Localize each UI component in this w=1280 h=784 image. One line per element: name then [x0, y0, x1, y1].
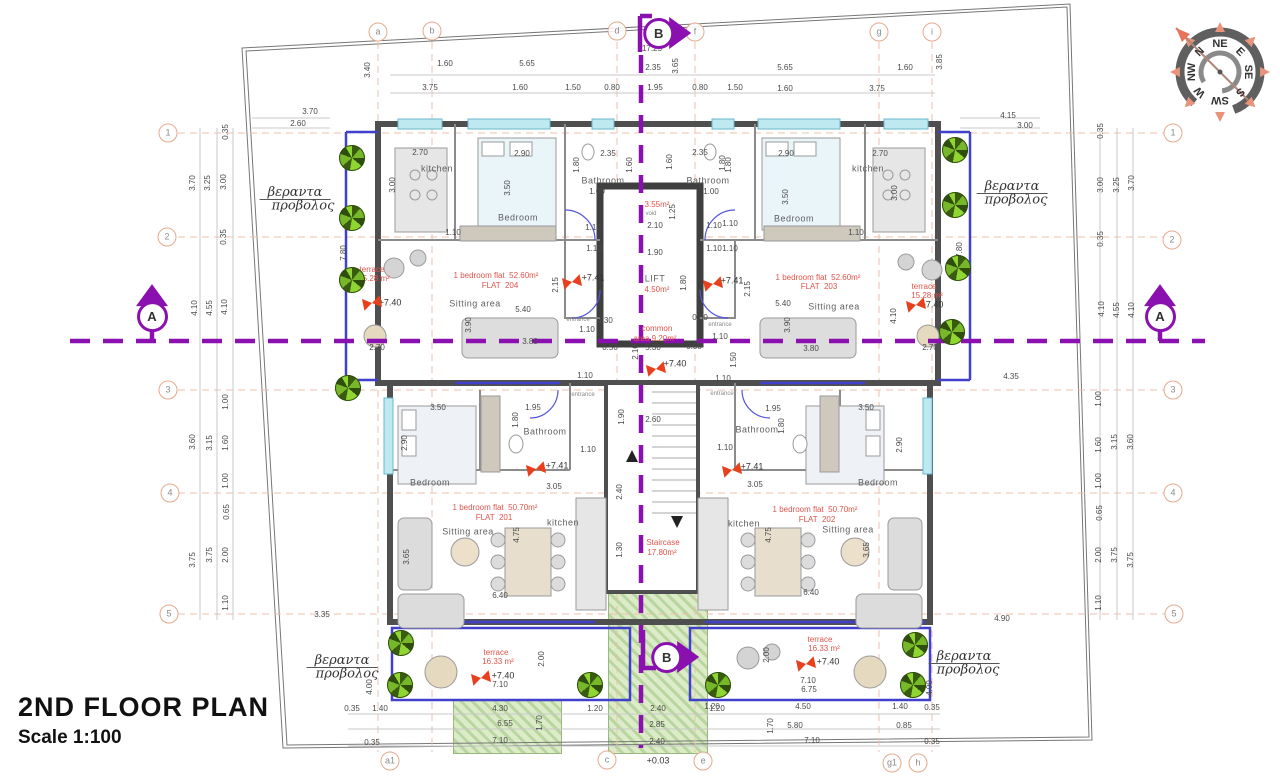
dim-label: 7.80: [340, 245, 348, 261]
dim-label: 1.00: [1095, 473, 1103, 489]
room-label: Bathroom: [686, 177, 729, 186]
dim-label: 4.10: [1098, 301, 1106, 317]
dim-label: 3.90: [465, 317, 473, 333]
compass-dir-sw: SW: [1211, 94, 1229, 106]
dim-label: 5.65: [519, 60, 535, 68]
dim-label: 4.10: [890, 308, 898, 324]
grid-bubble-5: 5: [1165, 605, 1184, 624]
red-label: 1 bedroom flat 52.60m²: [454, 272, 539, 280]
tree-icon: [939, 319, 965, 345]
dim-label: 3.80: [803, 345, 819, 353]
dim-label: 2.40: [649, 738, 665, 746]
level-flash-icon: [526, 461, 546, 476]
dim-label: 1.80: [725, 157, 733, 173]
level-label: +7.41: [741, 463, 764, 472]
section-marker-b: B: [643, 17, 691, 49]
greek-label: προβολος: [316, 668, 379, 681]
dim-label: 2.90: [778, 150, 794, 158]
dim-label: 1.10: [577, 372, 593, 380]
section-label: A: [1145, 301, 1176, 332]
dim-label: 1.10: [586, 245, 602, 253]
grid-bubble-3: 3: [1164, 381, 1183, 400]
red-label: area 9.20m²: [633, 335, 676, 343]
dim-label: 1.60: [222, 435, 230, 451]
red-label: 1 bedroom flat 50.70m²: [773, 506, 858, 514]
dim-label: 1.60: [897, 64, 913, 72]
compass-dir-nw: NW: [1186, 63, 1198, 81]
dim-label: 3.75: [189, 552, 197, 568]
dim-label: 2.00: [538, 651, 546, 667]
dim-label: 3.50: [782, 189, 790, 205]
grid-bubble-g: g: [870, 23, 889, 42]
dim-label: 2.35: [645, 64, 661, 72]
tree-icon: [339, 145, 365, 171]
red-label: 1 bedroom flat 50.70m²: [453, 504, 538, 512]
tree-icon: [339, 205, 365, 231]
tree-icon: [387, 672, 413, 698]
dim-label: 1.20: [587, 705, 603, 713]
dim-label: 1.10: [706, 222, 722, 230]
dim-label: 1.10: [579, 326, 595, 334]
dim-label: 4.75: [513, 527, 521, 543]
dim-label: 2.00: [763, 647, 771, 663]
dim-label: 3.80: [522, 338, 538, 346]
dim-label: 1.00: [222, 473, 230, 489]
dim-label: 2.70: [922, 344, 938, 352]
grid-bubble-a: a: [369, 23, 388, 42]
grid-bubble-a1: a1: [381, 752, 400, 771]
dim-label: 2.70: [872, 150, 888, 158]
title-block: 2ND FLOOR PLAN Scale 1:100: [18, 692, 269, 749]
dim-label: 7.10: [804, 737, 820, 745]
level-flash-icon: [562, 274, 582, 289]
dim-label: 4.35: [1003, 373, 1019, 381]
tiny-label: void: [645, 211, 656, 217]
dim-label: 1.00: [1095, 391, 1103, 407]
dim-label: 2.70: [412, 149, 428, 157]
dim-label: 1.10: [717, 444, 733, 452]
dim-label: 1.10: [848, 229, 864, 237]
dim-label: 3.70: [189, 175, 197, 191]
compass-dir-w: W: [1192, 84, 1208, 100]
dim-label: 1.10: [222, 595, 230, 611]
dim-label: 0.50: [686, 343, 702, 351]
dim-label: 1.60: [437, 60, 453, 68]
compass-dir-n: N: [1193, 45, 1207, 59]
dim-label: 1.10: [722, 220, 738, 228]
dim-label: 3.65: [403, 549, 411, 565]
dim-label: 3.00: [220, 174, 228, 190]
dim-label: 4.15: [1000, 112, 1016, 120]
room-label: Bedroom: [410, 479, 450, 488]
scale-label: Scale 1:100: [18, 727, 269, 749]
floor-plan-page: { "title": {"name": "2ND FLOOR PLAN", "s…: [0, 0, 1280, 784]
dim-label: 1.10: [712, 333, 728, 341]
dim-label: 2.15: [744, 281, 752, 297]
dim-label: 1.10: [715, 375, 731, 383]
section-marker-a: A: [136, 284, 168, 332]
room-label: Sitting area: [449, 300, 501, 309]
room-label: Bathroom: [735, 426, 778, 435]
room-label: Bedroom: [858, 479, 898, 488]
dim-label: 3.60: [1127, 434, 1135, 450]
dim-label: 3.50: [504, 180, 512, 196]
red-label: 4.50m²: [645, 286, 670, 294]
dim-label: 7.10: [492, 737, 508, 745]
dim-label: 3.50: [430, 404, 446, 412]
level-label: +7.40: [664, 360, 687, 369]
tree-icon: [339, 267, 365, 293]
annotation-overlay: 3.401.605.6517.252.353.655.651.603.853.7…: [0, 0, 1280, 784]
compass-dir-e: E: [1233, 45, 1247, 59]
dim-label: 2.15: [552, 277, 560, 293]
red-label: FLAT 204: [482, 282, 519, 290]
dim-label: 3.65: [863, 542, 871, 558]
dim-label: 1.95: [525, 404, 541, 412]
greek-label: προβολος: [937, 664, 1000, 677]
dim-label: 2.40: [650, 705, 666, 713]
dim-label: 5.30: [645, 344, 661, 352]
level-label: +7.41: [582, 274, 605, 283]
dim-label: 5.80: [787, 722, 803, 730]
room-label: kitchen: [728, 520, 760, 529]
room-label: kitchen: [421, 165, 453, 174]
dim-label: 2.85: [649, 721, 665, 729]
red-label: 16.33 m²: [808, 645, 840, 653]
dim-label: 1.20: [704, 703, 720, 711]
dim-label: 4.00: [366, 679, 374, 695]
dim-label: 3.25: [1113, 177, 1121, 193]
room-label: kitchen: [547, 519, 579, 528]
dim-label: 3.75: [1127, 552, 1135, 568]
grid-bubble-3: 3: [159, 381, 178, 400]
dim-label: 1.30: [616, 542, 624, 558]
dim-label: 0.35: [1097, 123, 1105, 139]
dim-label: 1.10: [1095, 595, 1103, 611]
dim-label: 1.80: [512, 412, 520, 428]
dim-label: 3.05: [747, 481, 763, 489]
grid-bubble-e: e: [694, 752, 713, 771]
dim-label: 1.60: [666, 154, 674, 170]
dim-label: 3.75: [1111, 547, 1119, 563]
grid-bubble-1: 1: [159, 124, 178, 143]
grid-bubble-c: c: [598, 751, 617, 770]
level-flash-icon: [471, 670, 491, 685]
level-label: +7.41: [721, 277, 744, 286]
dim-label: 1.50: [730, 352, 738, 368]
dim-label: 1.10: [706, 245, 722, 253]
tiny-label: entrance: [566, 317, 589, 323]
level-flash-icon: [906, 297, 926, 312]
dim-label: 3.05: [546, 483, 562, 491]
dim-label: 1.60: [512, 84, 528, 92]
red-label: 17.80m²: [647, 549, 676, 557]
dim-label: 3.00: [1097, 177, 1105, 193]
dim-label: 3.70: [302, 108, 318, 116]
dim-label: 1.00: [703, 188, 719, 196]
compass-rose: NEESESSWWNWN: [1156, 8, 1280, 136]
dim-label: 6.55: [497, 720, 513, 728]
dim-label: 1.60: [777, 85, 793, 93]
dim-label: 3.50: [858, 404, 874, 412]
dim-label: 0.85: [896, 722, 912, 730]
dim-label: 0.50: [602, 344, 618, 352]
dim-label: 4.10: [1128, 302, 1136, 318]
tiny-label: entrance: [710, 391, 733, 397]
dim-label: 0.30: [597, 317, 613, 325]
level-label: +7.40: [817, 658, 840, 667]
dim-label: 0.35: [924, 738, 940, 746]
dim-label: 2.35: [692, 149, 708, 157]
red-label: terrace: [808, 636, 833, 644]
dim-label: 0.35: [364, 739, 380, 747]
dim-label: 7.10: [800, 677, 816, 685]
room-label: Bathroom: [523, 428, 566, 437]
dim-label: 1.00: [222, 394, 230, 410]
dim-label: 3.00: [1017, 122, 1033, 130]
dim-label: 1.10: [445, 229, 461, 237]
grid-bubble-2: 2: [158, 228, 177, 247]
dim-label: 0.35: [924, 704, 940, 712]
dim-label: 2.00: [1095, 547, 1103, 563]
dim-label: 1.90: [618, 409, 626, 425]
dim-label: 1.10: [580, 446, 596, 454]
dim-label: 3.35: [314, 611, 330, 619]
dim-label: 1.25: [669, 204, 677, 220]
red-label: 16.33 m²: [482, 658, 514, 666]
dim-label: 3.60: [189, 434, 197, 450]
grid-bubble-4: 4: [161, 484, 180, 503]
dim-label: 0.65: [223, 504, 231, 520]
dim-label: 4.55: [206, 300, 214, 316]
greek-label: προβολος: [272, 200, 335, 213]
tree-icon: [577, 672, 603, 698]
compass-dir-ne: NE: [1212, 38, 1227, 50]
dim-label: 0.35: [344, 705, 360, 713]
room-label: Sitting area: [808, 303, 860, 312]
grid-bubble-d: d: [608, 22, 627, 41]
dim-label: 2.10: [647, 222, 663, 230]
dim-label: 1.95: [647, 84, 663, 92]
tree-icon: [942, 137, 968, 163]
dim-label: 0.65: [1096, 505, 1104, 521]
red-label: terrace: [912, 283, 937, 291]
room-label: Sitting area: [442, 528, 494, 537]
dim-label: 1.60: [1095, 437, 1103, 453]
grid-bubble-i: i: [923, 23, 942, 42]
red-label: FLAT 201: [476, 514, 513, 522]
dim-label: 1.80: [573, 157, 581, 173]
tree-icon: [388, 630, 414, 656]
dim-label: 7.10: [492, 681, 508, 689]
dim-label: 3.85: [936, 54, 944, 70]
grid-bubble-5: 5: [160, 605, 179, 624]
dim-label: 2.10: [632, 344, 640, 360]
tree-icon: [942, 192, 968, 218]
dim-label: 3.70: [1128, 175, 1136, 191]
dim-label: 1.70: [536, 715, 544, 731]
room-label: kitchen: [852, 165, 884, 174]
dim-label: 5.65: [777, 64, 793, 72]
dim-label: 3.75: [206, 547, 214, 563]
dim-label: 6.40: [492, 592, 508, 600]
room-label: Bedroom: [774, 215, 814, 224]
dim-label: 1.90: [647, 249, 663, 257]
dim-label: 4.50: [795, 703, 811, 711]
dim-label: 1.40: [892, 703, 908, 711]
tree-icon: [900, 672, 926, 698]
greek-label: προβολος: [985, 194, 1048, 207]
dim-label: 2.35: [600, 150, 616, 158]
level-flash-icon: [703, 276, 723, 291]
dim-label: 0.80: [692, 84, 708, 92]
room-label: Bedroom: [498, 214, 538, 223]
dim-label: 2.60: [645, 416, 661, 424]
tiny-label: entrance: [708, 322, 731, 328]
dim-label: 0.35: [1097, 231, 1105, 247]
dim-label: 2.40: [616, 484, 624, 500]
dim-label: 1.50: [727, 84, 743, 92]
room-label: LIFT: [645, 275, 666, 284]
dim-label: 0.35: [222, 124, 230, 140]
tree-icon: [902, 632, 928, 658]
red-label: 1 bedroom flat 52.60m²: [776, 274, 861, 282]
dim-label: 3.90: [784, 317, 792, 333]
compass-dir-s: S: [1233, 85, 1247, 99]
red-label: common: [642, 325, 673, 333]
red-label: 3.55m²: [645, 201, 670, 209]
section-label: A: [137, 301, 168, 332]
red-label: FLAT 202: [799, 516, 836, 524]
dim-label: 1.10: [722, 245, 738, 253]
grid-bubble-h: h: [909, 754, 928, 773]
dim-label: 2.90: [514, 150, 530, 158]
dim-label: 2.90: [401, 435, 409, 451]
red-label: terrace: [484, 649, 509, 657]
dim-label: 4.30: [492, 705, 508, 713]
dim-label: 1.60: [626, 157, 634, 173]
room-label: Bathroom: [581, 177, 624, 186]
dim-label: 4.90: [994, 615, 1010, 623]
dim-label: 3.75: [869, 85, 885, 93]
dim-label: 2.70: [369, 344, 385, 352]
tree-icon: [705, 672, 731, 698]
level-flash-icon: [722, 462, 742, 477]
dim-label: 3.00: [891, 185, 899, 201]
level-label: +7.41: [546, 462, 569, 471]
dim-label: 1.70: [767, 718, 775, 734]
dim-label: 2.90: [896, 437, 904, 453]
tiny-label: entrance: [571, 392, 594, 398]
page-title: 2ND FLOOR PLAN: [18, 692, 269, 723]
level-flash-icon: [796, 656, 816, 671]
section-label: B: [651, 642, 682, 673]
dim-label: 1.95: [765, 405, 781, 413]
grid-bubble-4: 4: [1164, 484, 1183, 503]
dim-label: 3.15: [206, 435, 214, 451]
dim-label: 1.80: [680, 275, 688, 291]
level-flash-icon: [362, 295, 382, 310]
compass-dir-se: SE: [1242, 65, 1254, 80]
dim-label: 5.40: [515, 306, 531, 314]
dim-label: 4.75: [765, 527, 773, 543]
red-label: Staircase: [646, 539, 679, 547]
dim-label: 3.15: [1111, 434, 1119, 450]
dim-label: 0.35: [220, 229, 228, 245]
red-label: FLAT 203: [801, 283, 838, 291]
dim-label: 3.00: [389, 177, 397, 193]
grid-bubble-b: b: [423, 22, 442, 41]
tree-icon: [335, 375, 361, 401]
dim-label: 3.40: [364, 62, 372, 78]
dim-label: 4.10: [191, 300, 199, 316]
dim-label: 4.00: [926, 680, 934, 696]
dim-label: 3.25: [204, 175, 212, 191]
dim-label: 1.00: [589, 188, 605, 196]
section-marker-a: A: [1144, 284, 1176, 332]
dim-label: 1.10: [585, 224, 601, 232]
dim-label: 4.55: [1113, 302, 1121, 318]
dim-label: 1.50: [565, 84, 581, 92]
level-flash-icon: [646, 361, 666, 376]
room-label: Sitting area: [822, 526, 874, 535]
grid-bubble-g1: g1: [883, 754, 902, 773]
grid-bubble-2: 2: [1163, 231, 1182, 250]
dim-label: 2.00: [222, 547, 230, 563]
dim-label: 1.40: [372, 705, 388, 713]
dim-label: 0.80: [604, 84, 620, 92]
dim-label: 5.40: [775, 300, 791, 308]
dim-label: 6.75: [801, 686, 817, 694]
tree-icon: [945, 255, 971, 281]
dim-label: 3.65: [672, 58, 680, 74]
section-label: B: [643, 18, 674, 49]
dim-label: 2.60: [290, 120, 306, 128]
dim-label: 1.80: [778, 418, 786, 434]
dim-label: 0.30: [692, 314, 708, 322]
section-marker-b: B: [651, 641, 699, 673]
dim-label: 4.10: [221, 299, 229, 315]
level-label: +0.03: [647, 757, 670, 766]
dim-label: 6.40: [803, 589, 819, 597]
dim-label: 3.75: [422, 84, 438, 92]
